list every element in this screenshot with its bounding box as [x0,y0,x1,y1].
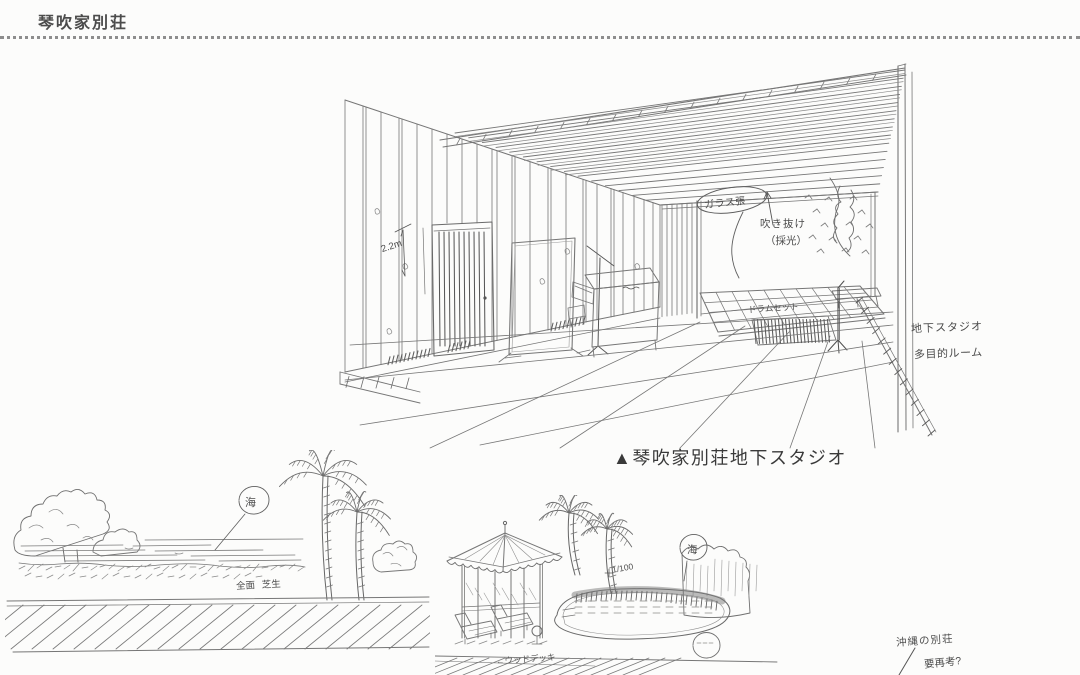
beach-sea-label: 海 [245,494,256,510]
pool-sketch [435,495,780,675]
studio-sketch [335,50,945,450]
dotted-divider [0,36,1080,39]
note-skylight-line1: 吹き抜け [760,216,806,231]
beach-lawn-note: 全面 芝生 [236,576,281,592]
page-title: 琴吹家別荘 [38,9,128,33]
sketch-caption: ▲琴吹家別荘地下スタジオ [613,444,847,470]
pool-sea-label: 海 [687,542,698,557]
note-basement-studio: 地下スタジオ [911,318,984,337]
note-multipurpose-room: 多目的ルーム [914,344,983,362]
artbook-page: 琴吹家別荘 ▲琴吹家別荘地下スタジオ ガラス張 吹き抜け （採光） 2.2m ド… [0,0,1080,675]
note-skylight-line2: （採光） [765,233,807,248]
beach-sketch [5,450,430,660]
